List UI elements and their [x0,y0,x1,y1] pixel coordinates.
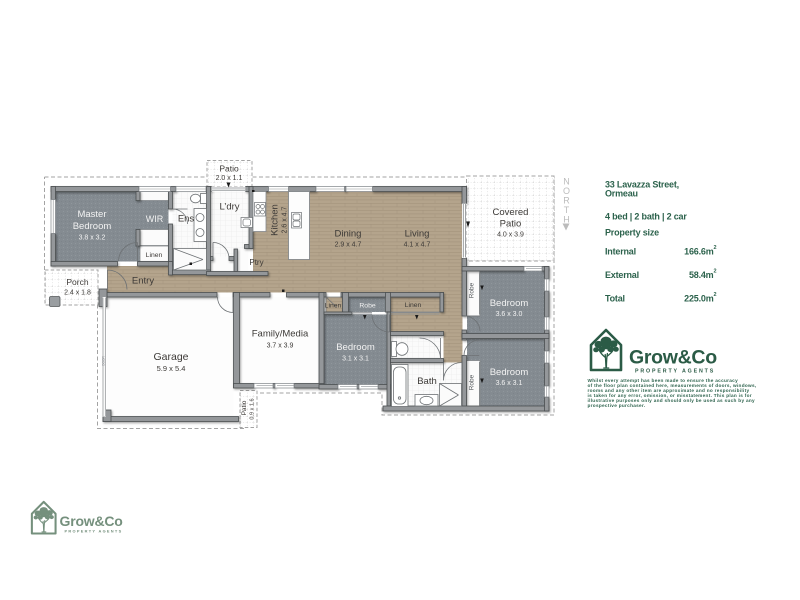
svg-text:4.0 x 3.9: 4.0 x 3.9 [497,232,524,239]
svg-text:Bedroom: Bedroom [490,298,529,309]
svg-text:3.6 x 3.0: 3.6 x 3.0 [496,311,523,318]
svg-text:2.0 x 1.1: 2.0 x 1.1 [216,175,243,182]
svg-text:3.1 x 3.1: 3.1 x 3.1 [342,356,369,363]
svg-text:H: H [563,215,570,225]
svg-text:Linen: Linen [146,252,163,259]
svg-text:2.6 x 4.7: 2.6 x 4.7 [282,206,289,233]
svg-text:PROPERTY AGENTS: PROPERTY AGENTS [635,369,715,375]
svg-text:Total: Total [605,294,625,304]
svg-text:DOOR: DOOR [102,356,106,366]
svg-text:Kitchen: Kitchen [270,204,281,236]
svg-text:4.1 x 4.7: 4.1 x 4.7 [404,242,431,249]
svg-text:Garage: Garage [153,351,188,363]
svg-text:Linen: Linen [405,302,422,309]
svg-text:Robe: Robe [359,303,375,310]
svg-text:3.7 x 3.9: 3.7 x 3.9 [267,343,294,350]
svg-text:Family/Media: Family/Media [252,329,309,340]
svg-text:2.4 x 1.8: 2.4 x 1.8 [64,290,91,297]
svg-text:3.6 x 3.1: 3.6 x 3.1 [496,380,523,387]
svg-text:Ptry: Ptry [249,258,263,267]
svg-text:166.6m: 166.6m [684,247,714,257]
svg-text:Living: Living [405,229,430,240]
svg-text:Dining: Dining [335,229,362,240]
svg-text:External: External [605,270,639,280]
svg-text:0.9 x 1.6: 0.9 x 1.6 [250,398,256,419]
svg-text:58.4m: 58.4m [689,270,714,280]
svg-text:Bedroom: Bedroom [73,221,112,232]
svg-text:3.8 x 3.2: 3.8 x 3.2 [79,235,106,242]
svg-text:Porch: Porch [66,277,88,287]
svg-text:2: 2 [714,292,717,298]
svg-text:O: O [563,186,570,196]
svg-text:PROPERTY AGENTS: PROPERTY AGENTS [65,529,123,534]
svg-text:Grow&Co: Grow&Co [60,513,123,529]
svg-text:Ens: Ens [178,214,195,225]
svg-text:Robe: Robe [469,374,476,390]
svg-text:225.0m: 225.0m [684,294,714,304]
svg-text:Patio: Patio [500,219,522,230]
svg-text:Entry: Entry [132,276,154,287]
svg-text:prospective purchaser.: prospective purchaser. [588,403,646,408]
svg-text:Ormeau: Ormeau [605,189,638,199]
svg-text:Linen: Linen [325,303,342,310]
svg-text:5.9 x 5.4: 5.9 x 5.4 [157,364,186,373]
svg-text:2.9 x 4.7: 2.9 x 4.7 [335,242,362,249]
svg-text:WIR: WIR [146,214,164,224]
svg-text:Internal: Internal [605,247,636,257]
svg-text:R: R [563,196,570,206]
svg-text:Bedroom: Bedroom [490,367,529,378]
svg-text:2: 2 [714,245,717,251]
svg-text:L’dry: L’dry [219,202,239,213]
svg-text:Property size: Property size [605,228,659,238]
svg-text:Patio: Patio [241,400,248,415]
svg-text:4 bed | 2 bath | 2 car: 4 bed | 2 bath | 2 car [605,212,687,222]
svg-text:Bath: Bath [417,376,437,387]
svg-text:Covered: Covered [493,207,529,218]
svg-text:N: N [563,177,570,187]
svg-text:Patio: Patio [219,164,239,174]
svg-text:Bedroom: Bedroom [336,342,375,353]
svg-text:Robe: Robe [469,282,476,298]
svg-text:Grow&Co: Grow&Co [629,347,717,369]
svg-text:2: 2 [714,269,717,275]
svg-text:T: T [564,205,570,215]
svg-text:Master: Master [77,209,106,220]
